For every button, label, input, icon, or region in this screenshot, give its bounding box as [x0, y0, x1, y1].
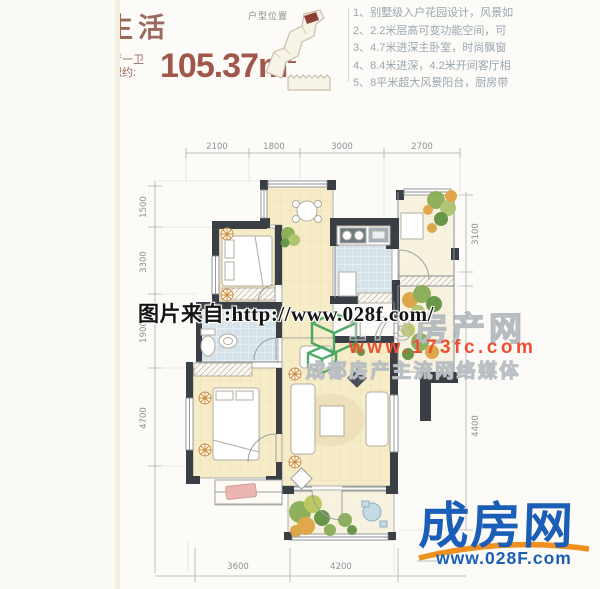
coffee-table	[320, 406, 344, 436]
photo-source-watermark: 图片来自:http://www.028f.com/	[138, 298, 434, 328]
site-logo-url: www.028F.com	[436, 548, 572, 569]
brand-slogan-watermark: 成都房产主流网络媒体	[306, 356, 521, 383]
dim-label: 3600	[227, 562, 249, 572]
dim-label: 4700	[139, 407, 149, 429]
dim-label: 3000	[331, 142, 353, 152]
toilet	[201, 336, 215, 356]
dim-label: 3300	[139, 251, 149, 273]
dim-label: 3100	[471, 223, 481, 245]
dim-label: 4200	[330, 562, 352, 572]
fridge	[339, 272, 356, 296]
dim-label: 4400	[471, 415, 481, 437]
planter-bar	[398, 276, 454, 286]
sofa	[291, 384, 315, 454]
dim-label: 2700	[411, 142, 433, 152]
bay-cushion	[225, 483, 256, 499]
bedroom2-closet	[194, 363, 252, 376]
scanned-floorplan-page: 生活 厅一卫 积约: 105.37m2 户型位置 1、别墅级入户花园设计，风景如…	[0, 0, 600, 589]
chaise	[366, 392, 388, 446]
toilet-tank	[201, 329, 215, 335]
dim-label: 2100	[206, 142, 228, 152]
dim-label: 1800	[263, 142, 285, 152]
dim-label: 1500	[139, 196, 149, 218]
balcony-cabinet	[401, 213, 423, 239]
